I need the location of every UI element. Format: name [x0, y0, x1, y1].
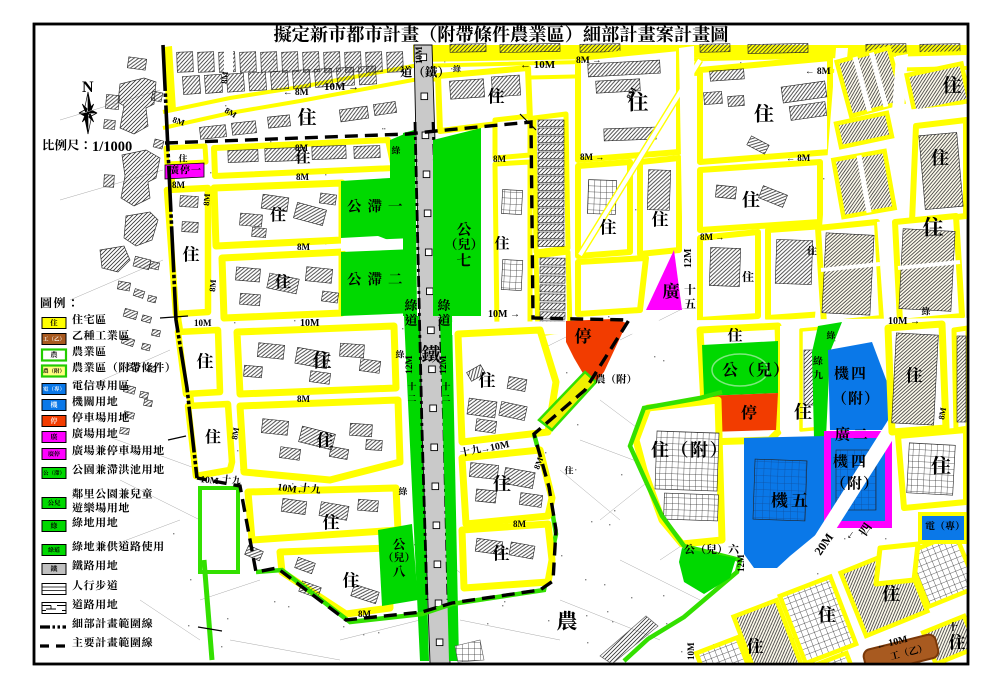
svg-text:10M →: 10M → [324, 81, 359, 93]
svg-text:8M: 8M [219, 71, 230, 84]
svg-text:← 8M: ← 8M [283, 88, 309, 98]
svg-text:8M: 8M [297, 242, 311, 252]
svg-text:8M →: 8M → [700, 232, 724, 242]
svg-text:8M: 8M [295, 143, 309, 153]
svg-text:← 8M: ← 8M [805, 67, 831, 77]
svg-text:8M: 8M [936, 407, 948, 421]
svg-text:8M: 8M [513, 519, 527, 529]
svg-text:8M: 8M [229, 427, 241, 441]
svg-text:← 10M: ← 10M [520, 59, 556, 71]
svg-text:8M: 8M [297, 394, 311, 404]
svg-text:10M →: 10M → [488, 309, 520, 320]
svg-text:8M: 8M [296, 172, 310, 182]
svg-text:12M: 12M [439, 356, 449, 375]
svg-text:10M: 10M [300, 318, 320, 329]
svg-text:← 8M: ← 8M [786, 153, 811, 163]
svg-text:8M: 8M [201, 193, 212, 206]
svg-text:10M: 10M [194, 318, 212, 328]
svg-text:10M →: 10M → [888, 316, 920, 327]
svg-text:12M: 12M [405, 356, 415, 375]
svg-text:10M: 10M [414, 46, 424, 64]
svg-text:8M: 8M [493, 154, 507, 164]
svg-text:12M: 12M [683, 248, 694, 268]
svg-text:8M →: 8M → [580, 152, 604, 162]
svg-text:8M: 8M [207, 279, 218, 292]
svg-text:10M: 10M [686, 642, 696, 660]
svg-text:1/1000: 1/1000 [92, 139, 132, 155]
svg-text:12M: 12M [736, 554, 746, 572]
svg-text:8M →: 8M → [576, 56, 602, 66]
svg-text:8M: 8M [172, 180, 186, 190]
svg-text:8M: 8M [358, 609, 372, 619]
